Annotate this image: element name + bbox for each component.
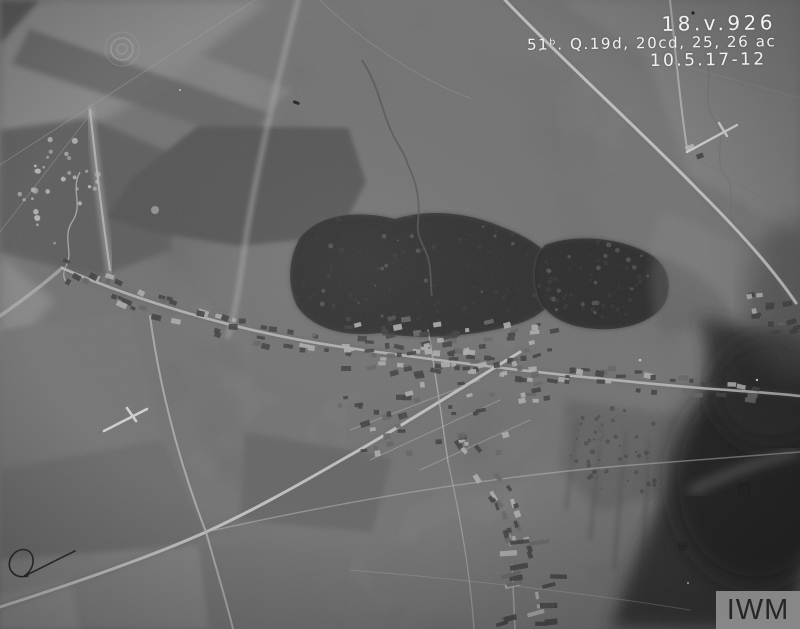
aerial-photograph: 18.v.926 51ᵇ. Q.19d, 20cd, 25, 26 ac 10.…	[0, 0, 800, 629]
aerial-photo-scene	[0, 0, 800, 629]
iwm-watermark: IWM	[716, 591, 800, 629]
vignette	[0, 0, 800, 629]
